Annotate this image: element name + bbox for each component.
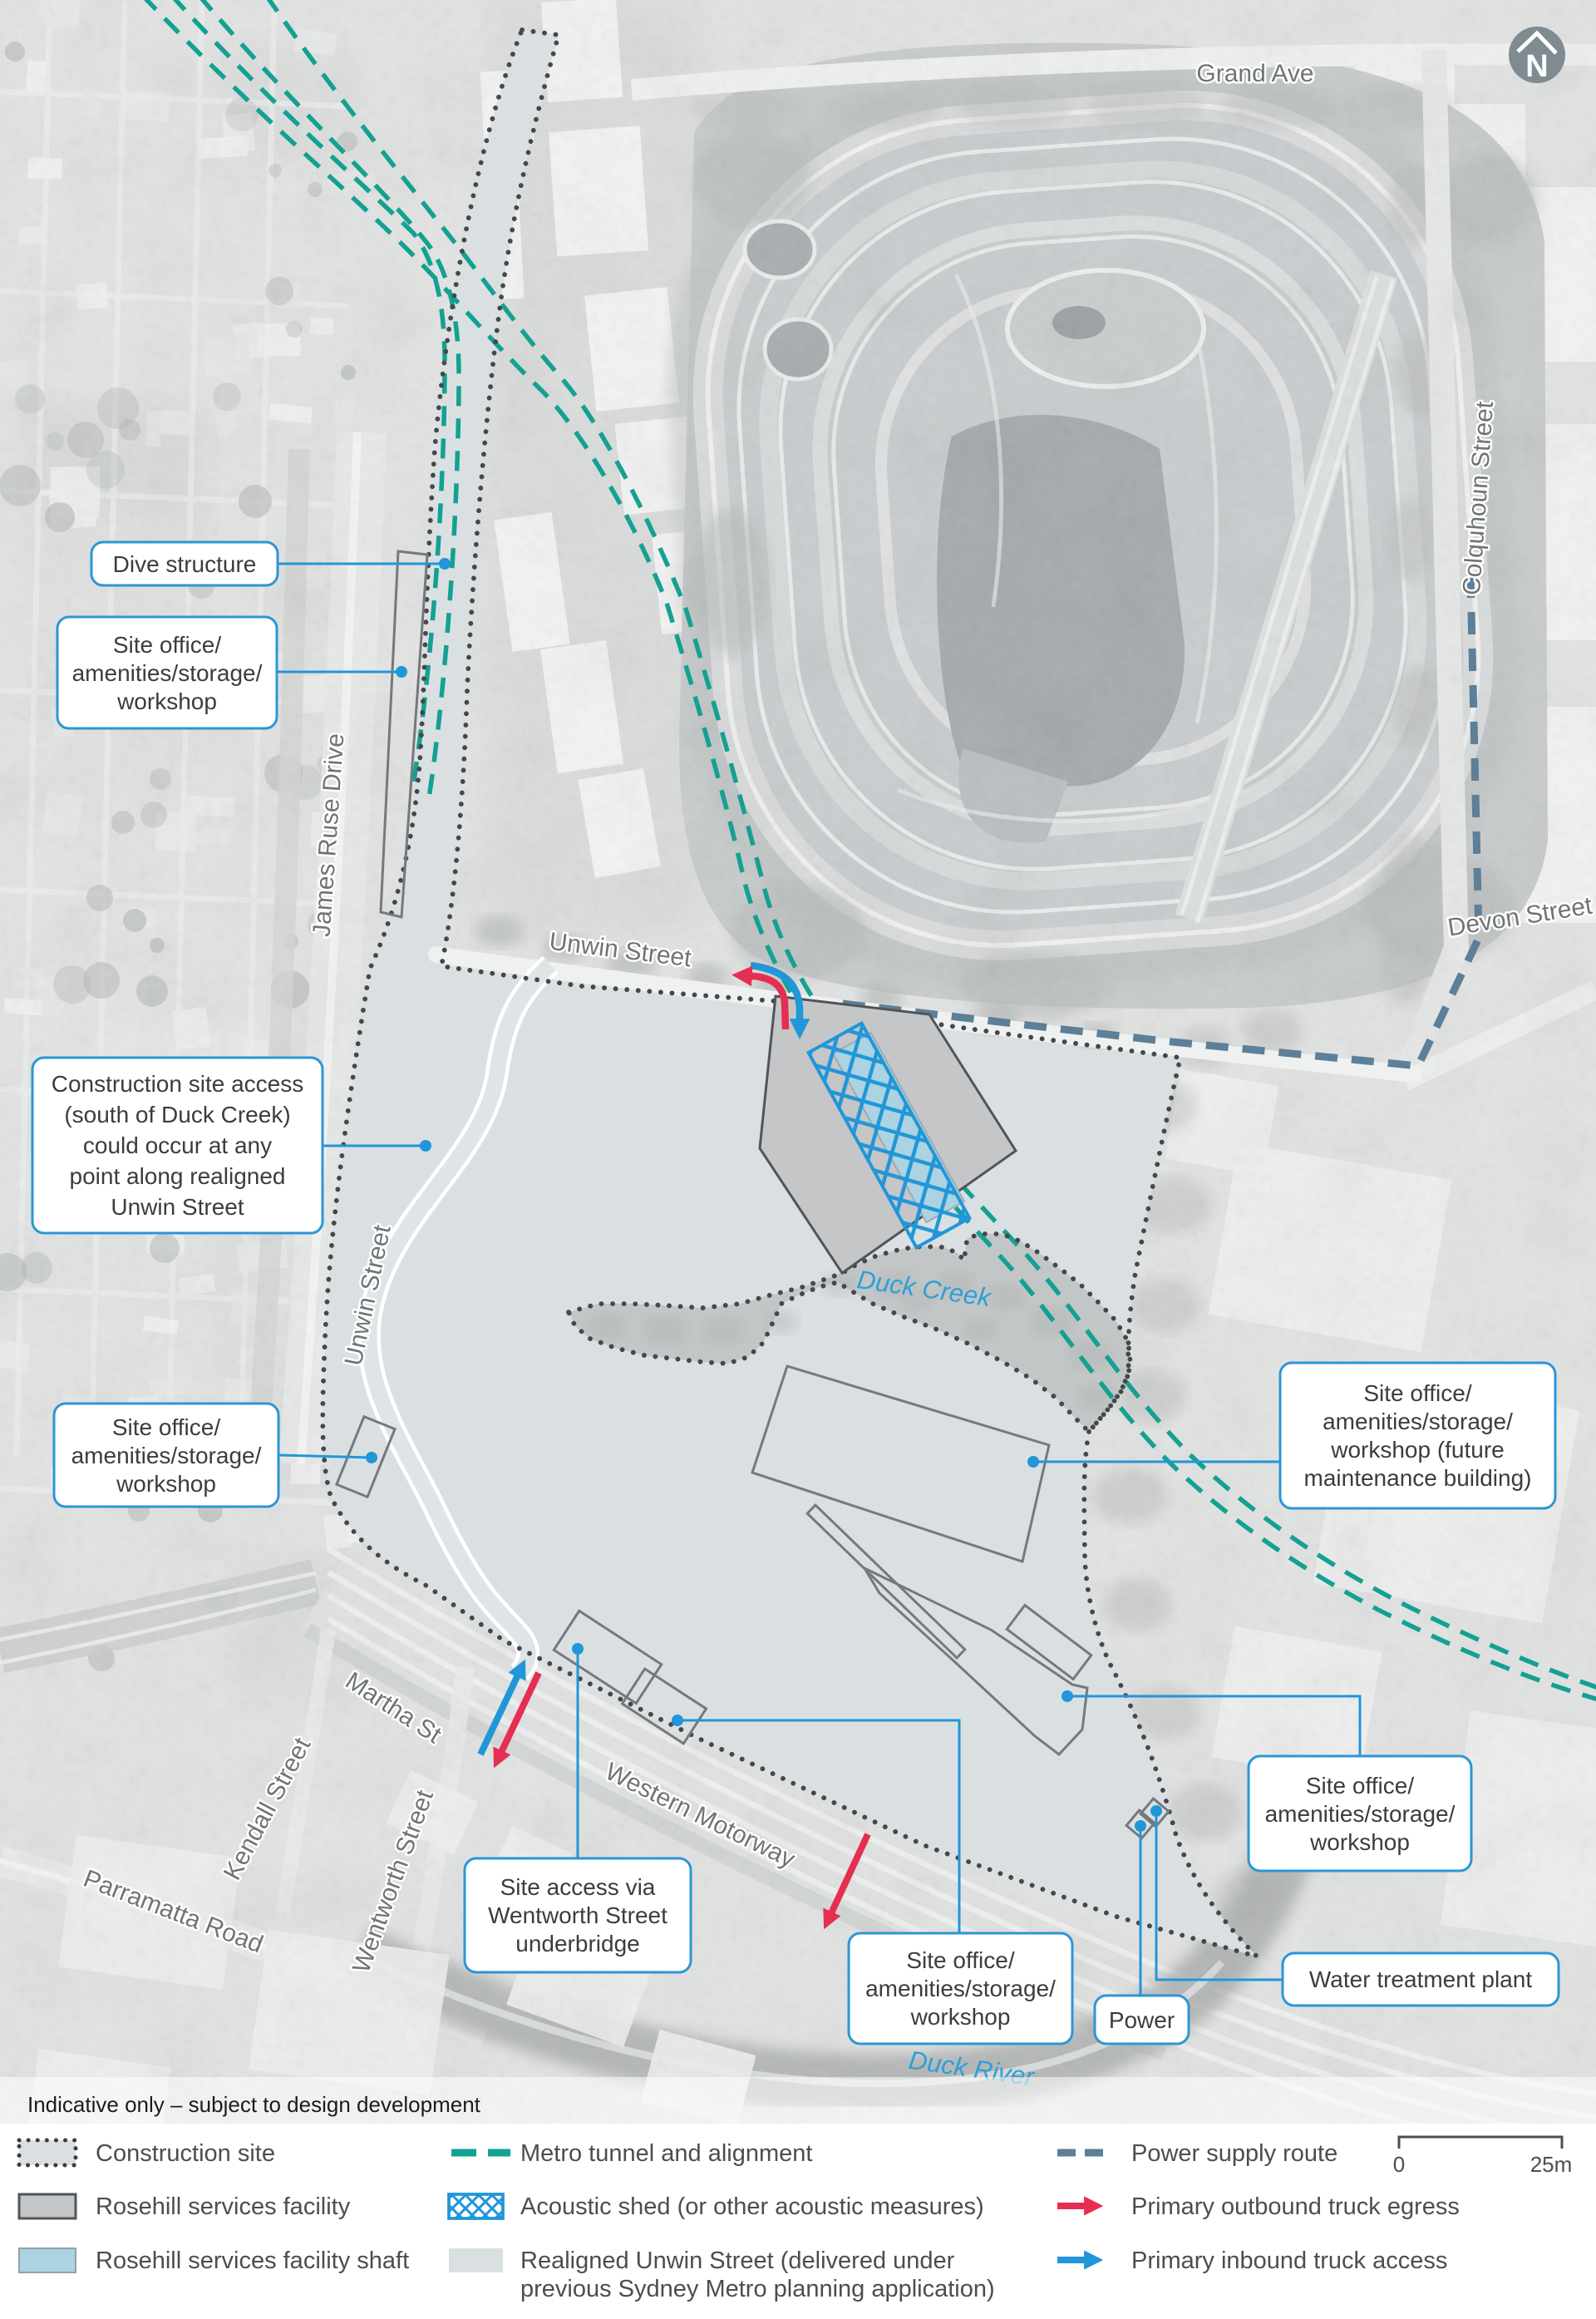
svg-text:amenities/storage/: amenities/storage/ <box>865 1976 1056 2001</box>
svg-text:amenities/storage/: amenities/storage/ <box>1323 1409 1513 1434</box>
svg-text:Primary outbound truck egress: Primary outbound truck egress <box>1131 2193 1460 2220</box>
svg-text:workshop: workshop <box>910 2004 1011 2030</box>
svg-text:Rosehill services facility sha: Rosehill services facility shaft <box>96 2247 409 2274</box>
svg-text:could occur at any: could occur at any <box>83 1132 272 1158</box>
svg-text:Construction site: Construction site <box>96 2140 275 2167</box>
svg-text:25m: 25m <box>1530 2152 1573 2177</box>
svg-text:Site access via: Site access via <box>500 1874 656 1900</box>
svg-text:Site office/: Site office/ <box>906 1947 1014 1973</box>
svg-text:Site office/: Site office/ <box>1306 1773 1414 1798</box>
svg-text:Water treatment plant: Water treatment plant <box>1309 1966 1532 1992</box>
svg-text:Rosehill services facility: Rosehill services facility <box>96 2193 351 2220</box>
svg-text:Power: Power <box>1109 2007 1175 2033</box>
svg-text:workshop: workshop <box>116 1471 216 1497</box>
svg-text:Realigned Unwin Street (delive: Realigned Unwin Street (delivered under <box>520 2247 955 2274</box>
svg-text:Wentworth Street: Wentworth Street <box>488 1902 667 1928</box>
svg-text:Construction site access: Construction site access <box>52 1071 303 1097</box>
svg-text:amenities/storage/: amenities/storage/ <box>1265 1801 1456 1827</box>
svg-text:0: 0 <box>1393 2152 1405 2177</box>
svg-text:Site office/: Site office/ <box>1363 1380 1471 1406</box>
svg-text:Primary inbound truck access: Primary inbound truck access <box>1131 2247 1447 2274</box>
svg-text:previous Sydney Metro planning: previous Sydney Metro planning applicati… <box>520 2276 995 2302</box>
svg-text:amenities/storage/: amenities/storage/ <box>71 1443 262 1468</box>
svg-text:Indicative only – subject to d: Indicative only – subject to design deve… <box>27 2092 481 2117</box>
svg-text:Metro tunnel and alignment: Metro tunnel and alignment <box>520 2140 812 2167</box>
svg-text:Acoustic shed (or other acoust: Acoustic shed (or other acoustic measure… <box>520 2193 984 2220</box>
svg-text:workshop: workshop <box>1309 1829 1410 1855</box>
svg-text:underbridge: underbridge <box>515 1931 639 1956</box>
svg-text:maintenance building): maintenance building) <box>1304 1465 1532 1491</box>
svg-text:point along realigned: point along realigned <box>70 1163 286 1189</box>
svg-text:Site office/: Site office/ <box>113 632 221 658</box>
svg-text:Grand Ave: Grand Ave <box>1196 60 1313 87</box>
svg-text:N: N <box>1525 49 1548 84</box>
svg-text:Unwin Street: Unwin Street <box>111 1194 244 1220</box>
svg-text:(south of Duck Creek): (south of Duck Creek) <box>64 1102 290 1127</box>
svg-text:Power supply route: Power supply route <box>1131 2140 1337 2167</box>
svg-text:Dive structure: Dive structure <box>113 551 257 577</box>
svg-text:amenities/storage/: amenities/storage/ <box>72 660 263 686</box>
svg-text:workshop (future: workshop (future <box>1330 1437 1505 1463</box>
svg-text:Site office/: Site office/ <box>112 1414 220 1440</box>
svg-text:workshop: workshop <box>116 688 217 714</box>
